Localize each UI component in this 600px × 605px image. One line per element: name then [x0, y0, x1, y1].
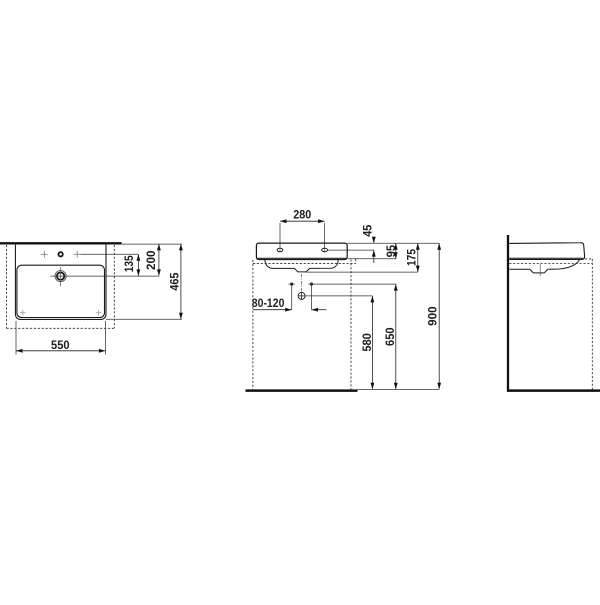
svg-text:200: 200 [144, 250, 158, 270]
svg-text:650: 650 [383, 327, 397, 346]
svg-text:175: 175 [405, 249, 419, 266]
svg-text:550: 550 [51, 338, 70, 352]
svg-text:580: 580 [360, 333, 374, 352]
svg-text:45: 45 [360, 225, 374, 237]
svg-text:465: 465 [168, 272, 182, 290]
svg-text:80-120: 80-120 [252, 296, 285, 310]
svg-text:135: 135 [122, 255, 136, 272]
svg-text:95: 95 [384, 245, 398, 258]
svg-text:900: 900 [425, 306, 439, 326]
svg-text:280: 280 [293, 208, 311, 222]
